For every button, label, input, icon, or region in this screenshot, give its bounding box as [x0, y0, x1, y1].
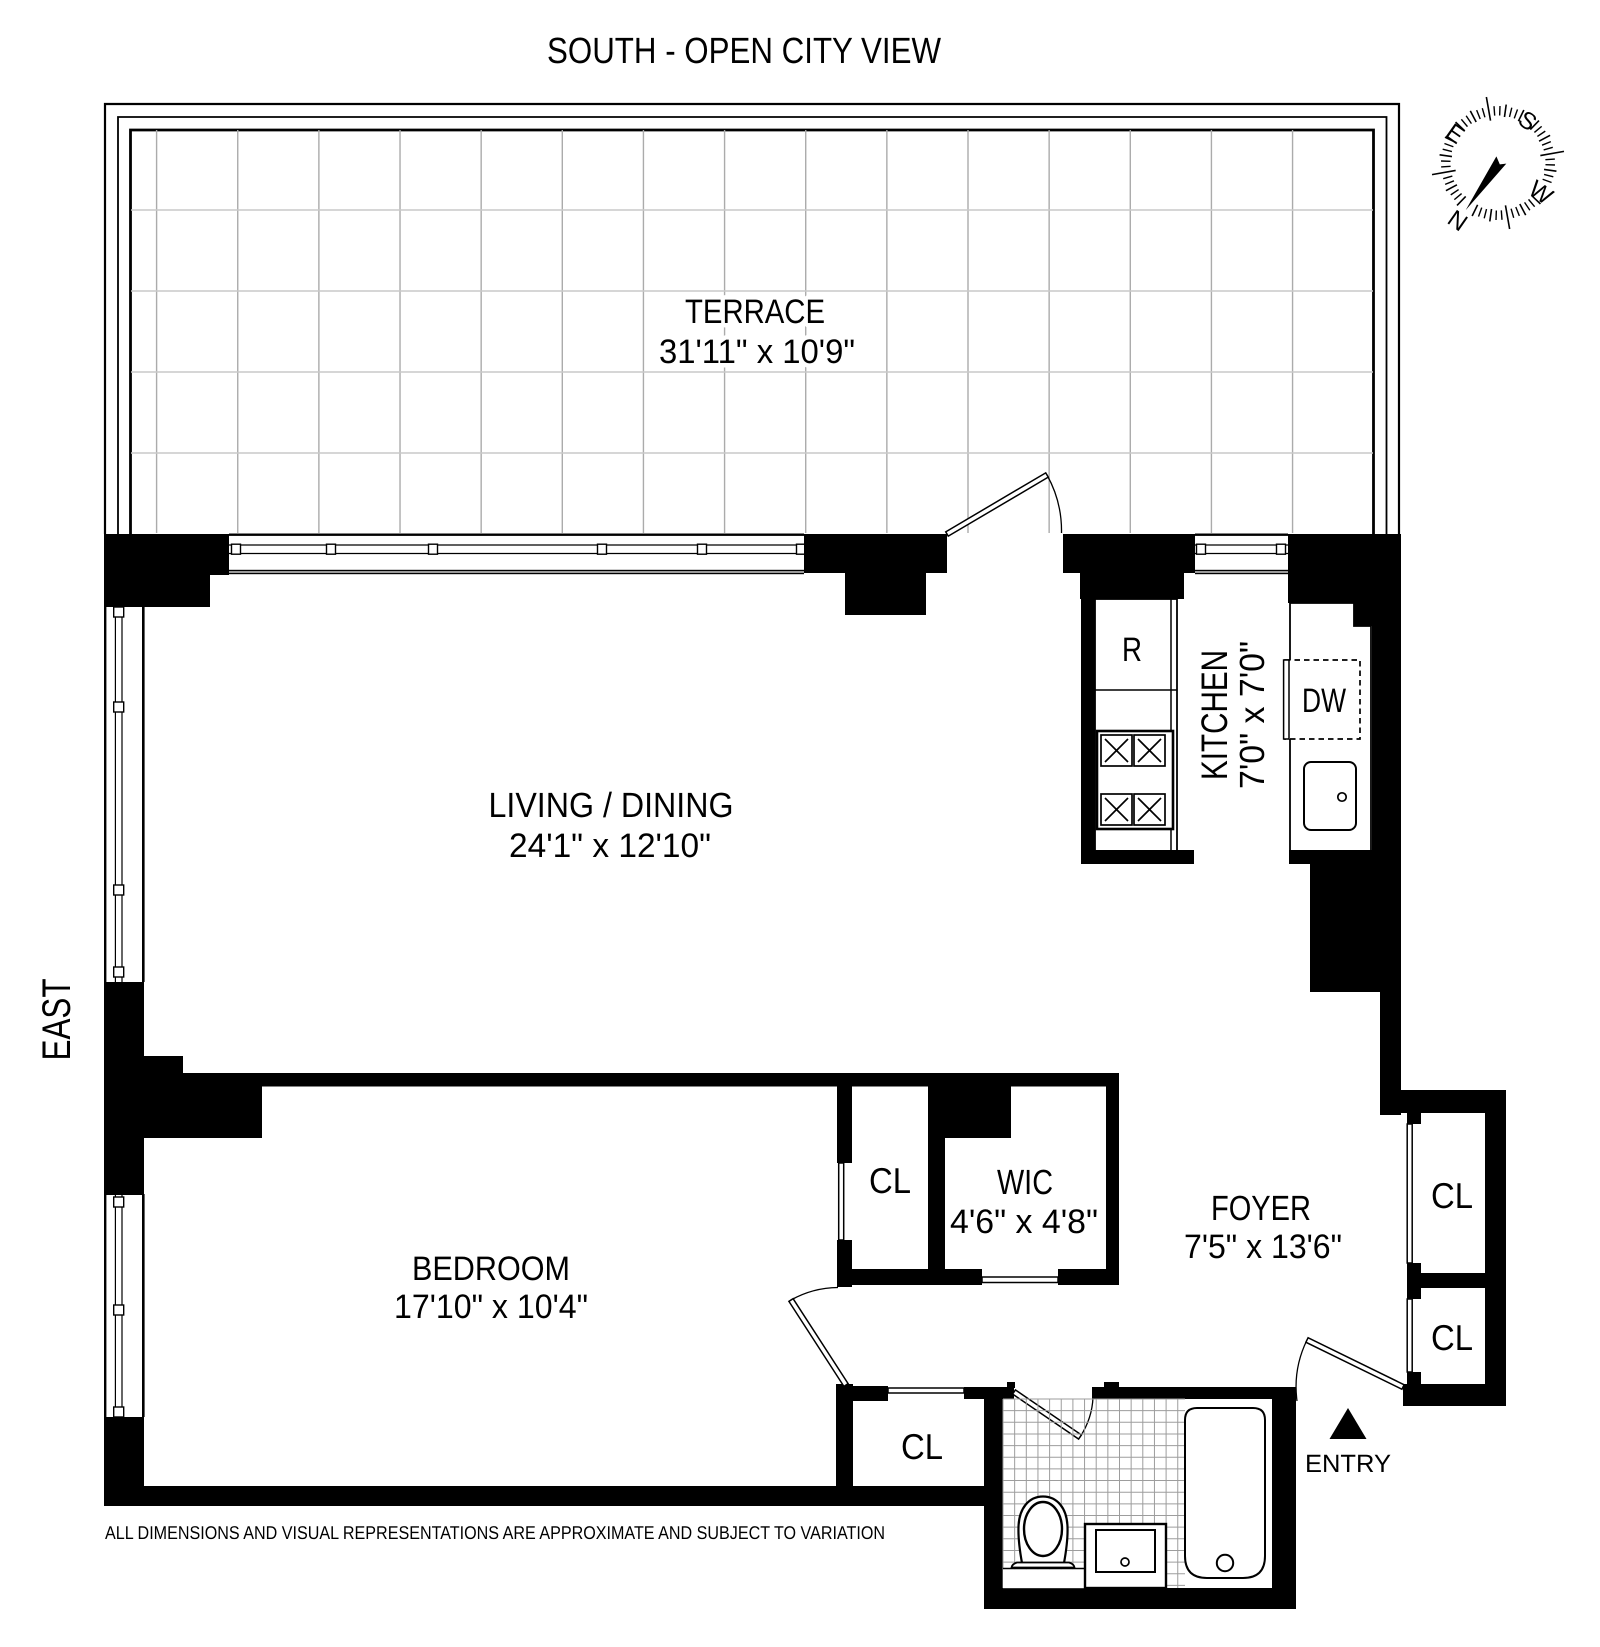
svg-text:EAST: EAST	[35, 979, 79, 1061]
svg-text:31'11" x 10'9": 31'11" x 10'9"	[659, 333, 855, 371]
svg-text:4'6" x 4'8": 4'6" x 4'8"	[950, 1203, 1098, 1241]
svg-text:7'0" x 7'0": 7'0" x 7'0"	[1233, 641, 1272, 789]
svg-text:CL: CL	[1431, 1175, 1473, 1216]
svg-text:DW: DW	[1302, 682, 1346, 720]
svg-text:N: N	[1442, 205, 1472, 237]
svg-text:W: W	[1524, 175, 1558, 210]
svg-text:7'5" x 13'6": 7'5" x 13'6"	[1184, 1228, 1342, 1266]
svg-text:24'1" x 12'10": 24'1" x 12'10"	[509, 827, 711, 865]
svg-text:TERRACE: TERRACE	[685, 293, 825, 331]
svg-text:CL: CL	[869, 1160, 911, 1201]
svg-text:CL: CL	[901, 1426, 943, 1467]
svg-text:ENTRY: ENTRY	[1305, 1450, 1391, 1478]
svg-text:KITCHEN: KITCHEN	[1194, 650, 1235, 780]
svg-text:LIVING / DINING: LIVING / DINING	[489, 786, 734, 825]
svg-text:ALL DIMENSIONS AND VISUAL REPR: ALL DIMENSIONS AND VISUAL REPRESENTATION…	[105, 1522, 885, 1543]
svg-text:BEDROOM: BEDROOM	[412, 1250, 570, 1288]
svg-text:FOYER: FOYER	[1211, 1189, 1311, 1228]
svg-text:CL: CL	[1431, 1317, 1473, 1358]
svg-text:SOUTH - OPEN CITY VIEW: SOUTH - OPEN CITY VIEW	[547, 30, 941, 71]
svg-text:WIC: WIC	[997, 1163, 1053, 1202]
svg-text:R: R	[1122, 631, 1142, 669]
svg-text:17'10" x 10'4": 17'10" x 10'4"	[394, 1288, 588, 1326]
